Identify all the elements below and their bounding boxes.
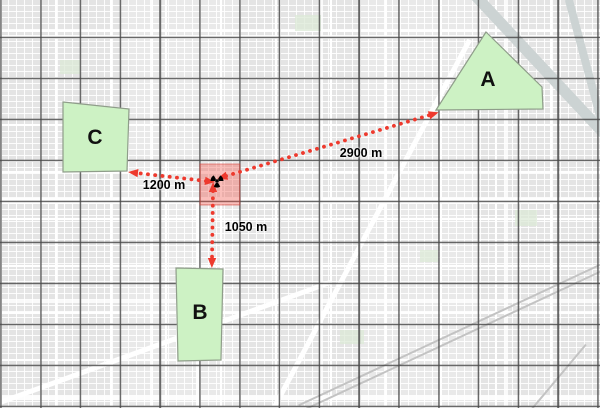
- measurement-label-c: 1200 m: [143, 178, 185, 192]
- arrowhead-icon: [208, 258, 216, 268]
- measurement-label-b: 1050 m: [225, 220, 267, 234]
- measurement-label-a: 2900 m: [340, 146, 382, 160]
- arrowhead-icon: [428, 111, 439, 119]
- map-canvas[interactable]: A B C 2900 m 1200 m 1050 m: [0, 0, 600, 408]
- arrowhead-icon: [128, 169, 138, 177]
- analysis-overlay: [0, 0, 600, 408]
- measurement-line-a[interactable]: [226, 115, 430, 176]
- zone-label-b: B: [192, 301, 207, 325]
- zone-label-a: A: [480, 68, 495, 92]
- zone-label-c: C: [87, 126, 102, 150]
